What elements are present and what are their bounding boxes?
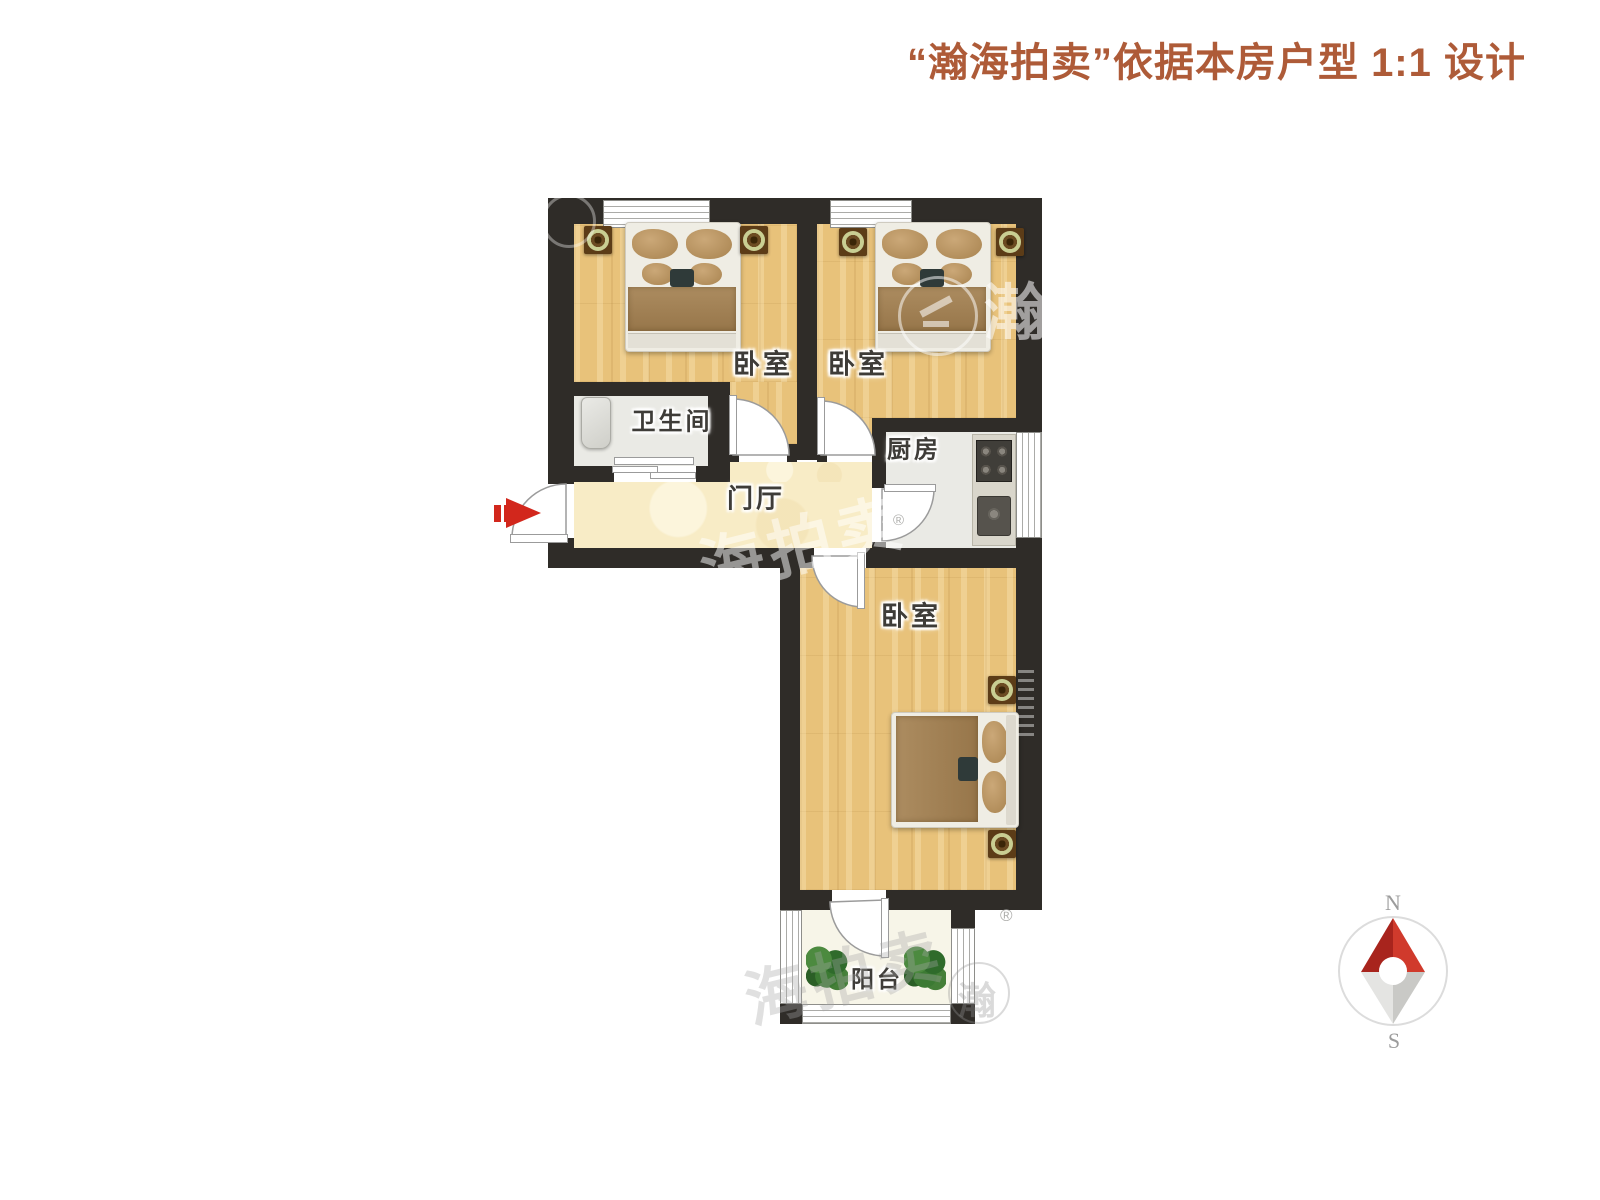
- bed-top-right: [875, 222, 991, 352]
- wall-bedroom-bottom-left: [780, 548, 800, 910]
- lamp-icon: [999, 231, 1021, 253]
- wall-kitchen-left-upper: [872, 418, 886, 488]
- wall-bathroom-bottom-right: [696, 466, 730, 482]
- bed-accent: [670, 269, 694, 287]
- window-balcony-right: [951, 928, 975, 1004]
- bedroom-top-right-floor-ext: [817, 418, 872, 444]
- room-label-bedroom-tl: 卧室: [733, 343, 793, 382]
- floor-plan-page: 卧室 卧室 卫生间 厨房 门厅 卧室 阳台 瀚 海拍卖 海拍卖 瀚 ® ® “瀚…: [0, 0, 1600, 1200]
- pillow: [982, 721, 1008, 763]
- wall-bedroom-bottom-south-right: [886, 890, 1042, 910]
- registered-mark: ®: [893, 512, 904, 529]
- wall-balcony-corner-ne: [951, 910, 975, 928]
- wall-bathroom-bottom-left: [574, 466, 614, 482]
- compass-hub: [1379, 957, 1407, 985]
- window-balcony-bottom: [802, 1004, 951, 1024]
- kitchen-door-panel: [884, 484, 936, 492]
- lamp-icon: [842, 231, 864, 253]
- bed-top-left: [625, 222, 741, 352]
- kitchen-door-opening: [872, 488, 886, 542]
- wall-bathroom-top: [574, 382, 730, 396]
- window-balcony-left: [780, 910, 802, 1004]
- wall-right-lower: [1016, 538, 1042, 910]
- room-label-kitchen: 厨房: [887, 430, 941, 465]
- nightstand-lamp: [988, 830, 1016, 858]
- bedroom-top-left-floor-ext: [730, 382, 797, 444]
- compass-south-label: S: [1388, 1028, 1400, 1054]
- wall-balcony-corner-sw: [780, 1004, 802, 1024]
- wall-balcony-corner-se: [951, 1004, 975, 1024]
- bedroom-tr-door-opening: [827, 444, 872, 462]
- room-label-bathroom: 卫生间: [632, 402, 713, 437]
- cushion: [940, 263, 972, 285]
- entry-arrow-icon: [506, 498, 541, 528]
- bedroom-tl-door-panel: [729, 395, 737, 455]
- lamp-icon: [991, 833, 1013, 855]
- nightstand-lamp: [584, 226, 612, 254]
- room-label-balcony: 阳台: [851, 960, 903, 994]
- bed-foot: [878, 333, 986, 348]
- entry-door-panel: [510, 534, 568, 543]
- room-label-bedroom-tr: 卧室: [828, 343, 888, 382]
- lamp-icon: [743, 229, 765, 251]
- wall-bedroom-tl-bottom-right: [787, 444, 797, 462]
- cushion: [690, 263, 722, 285]
- pillow: [686, 229, 732, 259]
- stove: [976, 440, 1012, 482]
- room-label-bedroom-bottom: 卧室: [881, 595, 941, 634]
- balcony-door-panel: [881, 898, 889, 958]
- compass-north-label: N: [1385, 890, 1401, 916]
- wall-bedroom-bottom-south-left: [780, 890, 832, 910]
- page-title: “瀚海拍卖”依据本房户型 1:1 设计: [907, 30, 1526, 88]
- entry-door-opening: [548, 484, 574, 538]
- nightstand-lamp: [740, 226, 768, 254]
- pillow: [982, 771, 1008, 813]
- bed-accent: [958, 757, 978, 781]
- pillow: [882, 229, 928, 259]
- bed-bottom: [891, 712, 1019, 828]
- wall-bedroom-divider: [797, 224, 817, 460]
- entry-arrow-icon: [494, 505, 501, 522]
- nightstand-lamp: [839, 228, 867, 256]
- wall-left-upper: [548, 198, 574, 484]
- blanket: [628, 287, 736, 331]
- bedroom-bottom-door-panel: [857, 552, 865, 609]
- window-kitchen: [1016, 432, 1042, 538]
- bathroom-sliding-door: [650, 472, 696, 479]
- hall-floor: [574, 482, 872, 548]
- bedroom-tl-door-opening: [739, 444, 787, 462]
- pillow: [632, 229, 678, 259]
- bedroom-tr-door-panel: [817, 397, 825, 455]
- lamp-icon: [991, 679, 1013, 701]
- bed-accent: [920, 269, 944, 287]
- room-label-hall: 门厅: [727, 479, 785, 516]
- wall-hall-bottom: [548, 548, 814, 568]
- lamp-icon: [587, 229, 609, 251]
- bathroom-shelf: [614, 457, 694, 465]
- registered-mark: ®: [1000, 906, 1013, 926]
- balcony-door-opening: [832, 890, 886, 910]
- toilet: [581, 397, 611, 449]
- plant: [904, 946, 946, 992]
- nightstand-lamp: [996, 228, 1024, 256]
- headboard: [1006, 715, 1016, 825]
- kitchen-sink: [977, 496, 1011, 536]
- nightstand-lamp: [988, 676, 1016, 704]
- bed-foot: [628, 333, 736, 348]
- plant: [806, 946, 848, 992]
- blanket: [878, 287, 986, 331]
- pillow: [936, 229, 982, 259]
